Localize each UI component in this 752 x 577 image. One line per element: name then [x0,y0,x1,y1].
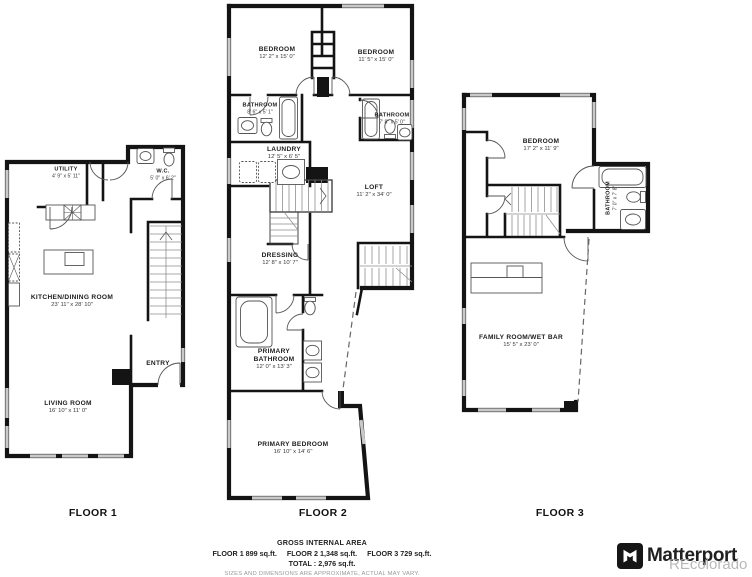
disclaimer: SIZES AND DIMENSIONS ARE APPROXIMATE, AC… [209,571,436,577]
floor3-stairs [505,187,560,236]
floor2-area: FLOOR 2 1,348 sq.ft. [287,549,357,558]
room-label-family-room: FAMILY ROOM/WET BAR 15' 5" x 23' 0" [479,334,563,350]
floor2-sloped-ceiling-line [343,292,356,389]
room-label-loft: LOFT 11' 2" x 34' 0" [356,184,391,200]
room-label-kitchen-dining: KITCHEN/DINING ROOM 23' 11" x 28' 10" [31,294,113,310]
room-label-primary-bedroom: PRIMARY BEDROOM 16' 10" x 14' 6" [258,441,329,457]
floor-areas: FLOOR 1 899 sq.ft. FLOOR 2 1,348 sq.ft. … [209,549,436,558]
room-label-bedroom-2: BEDROOM 11' 5" x 15' 0" [358,49,395,65]
floor-2-title: FLOOR 2 [299,507,347,519]
room-label-bathroom-3: BATHROOM 7' 0" x 7' 8" [606,181,619,215]
floor2-walls [229,6,412,498]
room-label-bathroom-1: BATHROOM 8' 6" x 5' 1" [243,102,278,115]
floor3-area: FLOOR 3 729 sq.ft. [367,549,431,558]
gross-area-footer: GROSS INTERNAL AREA FLOOR 1 899 sq.ft. F… [209,538,436,577]
room-label-bedroom-1: BEDROOM 12' 2" x 15' 0" [259,46,296,62]
floor1-area: FLOOR 1 899 sq.ft. [213,549,277,558]
total-area: TOTAL : 2,976 sq.ft. [209,559,436,568]
floorplan-page: UTILITY 4' 9" x 5' 11" W.C. 5' 0" x 6' 2… [0,0,752,575]
floor1-stairs [150,226,182,318]
floor2-plan [229,6,412,498]
matterport-icon [617,543,643,569]
floor3-doors [487,140,594,261]
room-label-utility: UTILITY 4' 9" x 5' 11" [52,166,80,179]
room-label-wc: W.C. 5' 0" x 6' 2" [150,168,176,181]
room-label-bedroom-3: BEDROOM 17' 2" x 11' 9" [523,138,560,154]
floor3-sloped-ceiling-line [578,239,589,402]
floor-3-title: FLOOR 3 [536,507,584,519]
room-label-living-room: LIVING ROOM 16' 10" x 11' 0" [44,400,92,416]
room-label-entry: ENTRY [146,360,170,368]
floor-1-title: FLOOR 1 [69,507,117,519]
room-label-primary-bathroom: PRIMARY BATHROOM 12' 0" x 13' 3" [245,348,303,372]
recolorado-watermark: REcolorado [669,556,747,573]
room-label-laundry: LAUNDRY 12' 5" x 6' 5" [267,146,301,162]
gross-area-title: GROSS INTERNAL AREA [209,538,436,547]
floorplan-canvas [0,0,752,575]
room-label-dressing: DRESSING 12' 8" x 10' 7" [262,252,299,268]
room-label-bathroom-2: BATHROOM 7' 8" x 5' 0" [375,112,410,125]
